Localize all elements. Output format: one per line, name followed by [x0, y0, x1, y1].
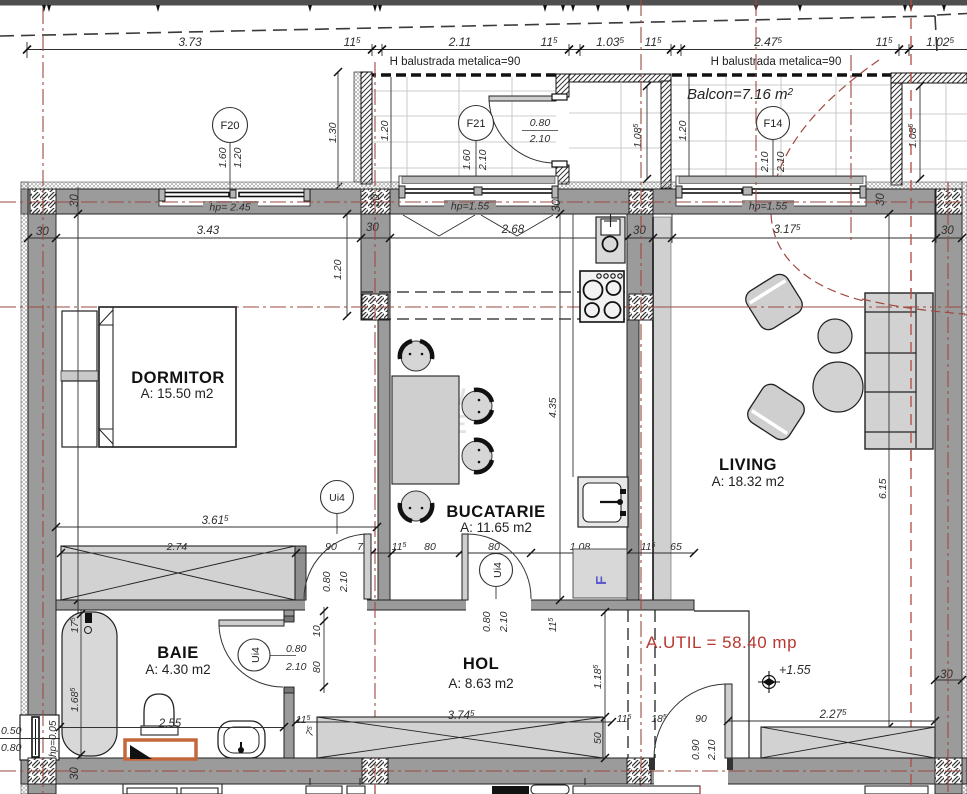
- svg-text:1.20: 1.20: [677, 120, 689, 141]
- svg-text:A: 15.50 m2: A: 15.50 m2: [141, 386, 214, 401]
- svg-text:2.10: 2.10: [529, 133, 551, 145]
- svg-text:Ui4: Ui4: [329, 492, 345, 504]
- svg-text:F20: F20: [221, 120, 240, 132]
- svg-text:2.55: 2.55: [158, 718, 182, 730]
- svg-text:DORMITOR: DORMITOR: [131, 369, 225, 387]
- svg-text:2.10: 2.10: [706, 739, 718, 761]
- svg-text:A: 4.30 m2: A: 4.30 m2: [145, 662, 210, 677]
- svg-text:1.60: 1.60: [217, 147, 229, 168]
- svg-text:90: 90: [695, 713, 707, 725]
- svg-text:30: 30: [366, 222, 379, 234]
- svg-text:2.10: 2.10: [477, 149, 489, 171]
- svg-text:80: 80: [424, 541, 436, 553]
- svg-text:2.11: 2.11: [448, 35, 471, 49]
- svg-text:Balcon=7.16 m2: Balcon=7.16 m2: [687, 86, 793, 103]
- svg-text:0.50: 0.50: [1, 725, 22, 737]
- svg-text:+1.55: +1.55: [779, 663, 811, 677]
- svg-text:10: 10: [311, 625, 323, 637]
- svg-text:BUCATARIE: BUCATARIE: [446, 503, 545, 521]
- svg-text:0.90: 0.90: [690, 739, 702, 760]
- svg-text:30: 30: [633, 225, 646, 237]
- svg-text:1.20: 1.20: [232, 147, 244, 168]
- svg-text:80: 80: [311, 661, 323, 673]
- svg-text:2.10: 2.10: [285, 661, 307, 673]
- svg-text:2.68: 2.68: [501, 224, 525, 236]
- svg-text:1.60: 1.60: [461, 149, 473, 170]
- svg-text:1.30: 1.30: [327, 122, 339, 143]
- svg-text:LIVING: LIVING: [719, 456, 777, 474]
- svg-text:30: 30: [370, 194, 382, 207]
- svg-text:3.43: 3.43: [197, 225, 220, 237]
- svg-text:30: 30: [69, 767, 81, 780]
- svg-text:Ui4: Ui4: [250, 647, 262, 663]
- svg-text:65: 65: [670, 541, 682, 553]
- svg-text:2.10: 2.10: [498, 611, 510, 633]
- svg-text:80: 80: [488, 541, 500, 553]
- svg-text:H balustrada metalica=90: H balustrada metalica=90: [711, 56, 842, 68]
- svg-text:A: 18.32 m2: A: 18.32 m2: [712, 474, 785, 489]
- svg-text:hp= 2.45: hp= 2.45: [209, 202, 250, 214]
- svg-text:F21: F21: [467, 118, 486, 130]
- svg-text:0.80: 0.80: [1, 742, 22, 754]
- svg-text:0.80: 0.80: [286, 643, 307, 655]
- svg-text:50: 50: [592, 732, 604, 744]
- svg-text:2.10: 2.10: [759, 151, 771, 173]
- svg-text:0.80: 0.80: [321, 571, 333, 592]
- svg-text:4.35: 4.35: [547, 397, 559, 418]
- svg-text:0.80: 0.80: [481, 611, 493, 632]
- svg-text:30: 30: [875, 193, 887, 206]
- svg-text:A: 11.65 m2: A: 11.65 m2: [460, 520, 532, 535]
- svg-text:F14: F14: [764, 118, 783, 130]
- svg-text:1.20: 1.20: [379, 120, 391, 141]
- svg-text:H balustrada metalica=90: H balustrada metalica=90: [390, 56, 521, 68]
- svg-text:2.10: 2.10: [775, 151, 787, 173]
- svg-text:2.74: 2.74: [166, 541, 188, 553]
- svg-text:30: 30: [551, 199, 563, 212]
- svg-text:30: 30: [940, 669, 953, 681]
- svg-text:3.73: 3.73: [178, 35, 202, 49]
- svg-text:BAIE: BAIE: [157, 644, 198, 662]
- svg-text:Ui4: Ui4: [492, 562, 504, 578]
- svg-text:2.10: 2.10: [338, 571, 350, 593]
- svg-text:30: 30: [69, 194, 81, 207]
- svg-text:A.UTIL = 58.40 mp: A.UTIL = 58.40 mp: [646, 633, 797, 652]
- svg-text:0.80: 0.80: [530, 117, 551, 129]
- svg-text:A: 8.63 m2: A: 8.63 m2: [448, 676, 513, 691]
- svg-text:HOL: HOL: [463, 655, 499, 673]
- svg-text:6.15: 6.15: [877, 478, 889, 499]
- svg-text:1.20: 1.20: [332, 259, 344, 280]
- svg-text:F: F: [593, 576, 610, 585]
